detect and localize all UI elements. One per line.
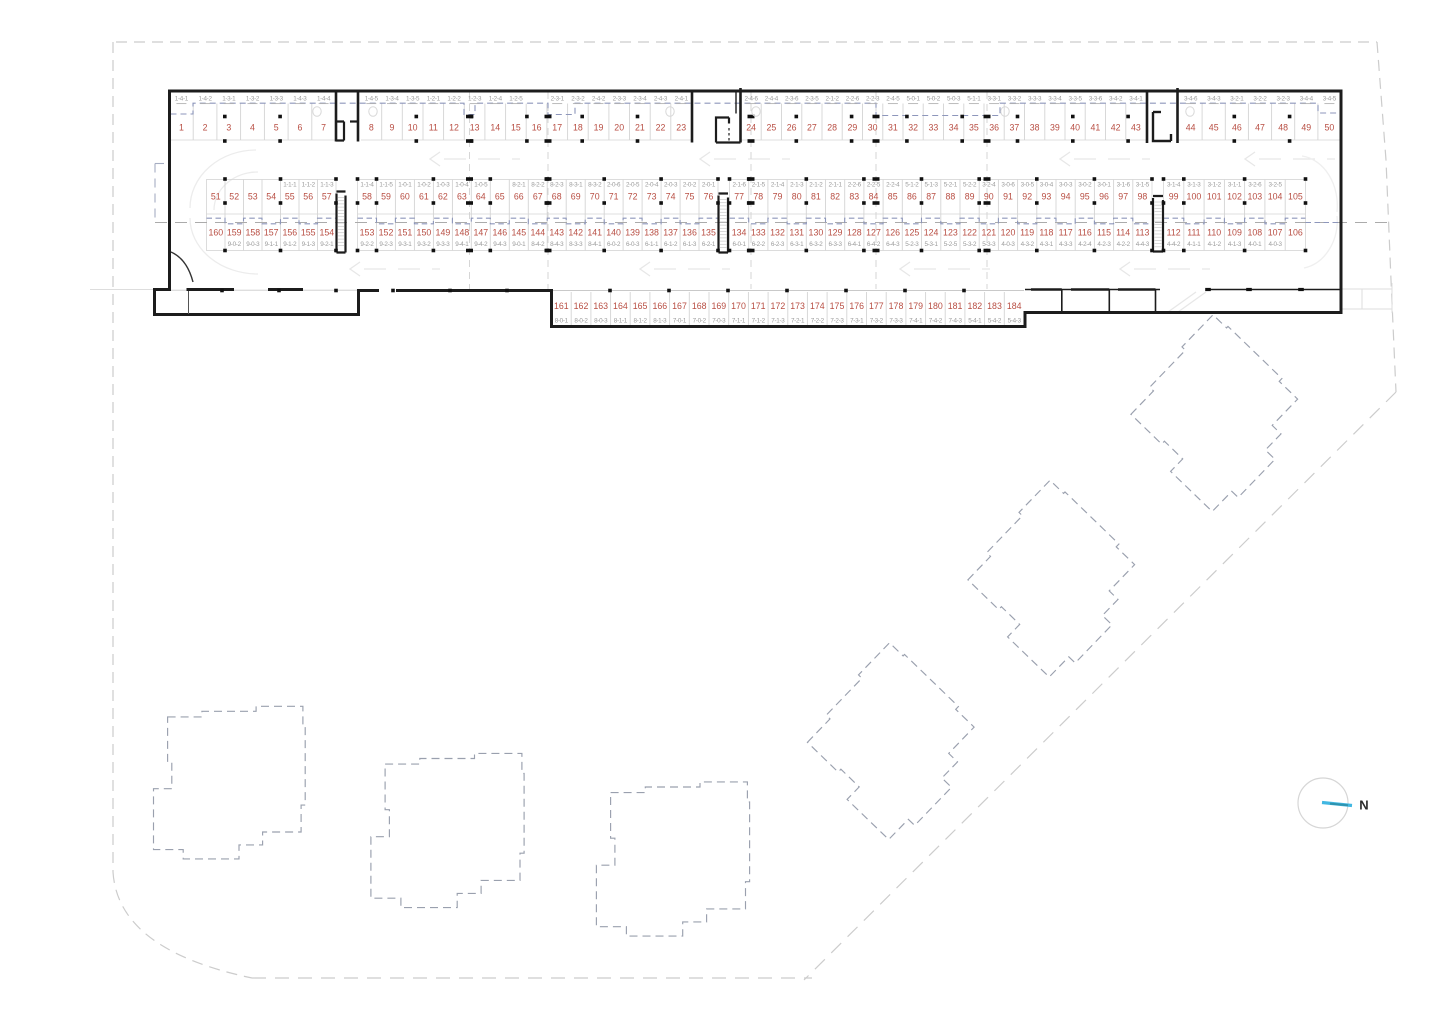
- svg-text:66: 66: [514, 192, 524, 202]
- svg-text:25: 25: [767, 122, 777, 132]
- svg-text:3-4-2: 3-4-2: [1109, 96, 1123, 103]
- svg-text:4-2-4: 4-2-4: [1078, 241, 1092, 248]
- svg-text:128: 128: [847, 227, 862, 237]
- svg-text:139: 139: [625, 227, 640, 237]
- svg-text:109: 109: [1227, 227, 1242, 237]
- svg-text:54: 54: [266, 192, 276, 202]
- svg-text:103: 103: [1247, 192, 1262, 202]
- svg-text:2-3-2: 2-3-2: [571, 96, 585, 103]
- svg-text:6-2-1: 6-2-1: [702, 241, 716, 248]
- svg-text:1-3-1: 1-3-1: [222, 96, 236, 103]
- svg-text:1-4-4: 1-4-4: [317, 96, 331, 103]
- svg-text:47: 47: [1255, 122, 1265, 132]
- svg-text:110: 110: [1207, 227, 1221, 237]
- svg-text:1-2-2: 1-2-2: [447, 96, 461, 103]
- svg-text:64: 64: [476, 192, 486, 202]
- svg-text:150: 150: [417, 227, 432, 237]
- svg-text:65: 65: [495, 192, 505, 202]
- svg-text:3-3-5: 3-3-5: [1068, 96, 1082, 103]
- svg-text:7-2-1: 7-2-1: [791, 318, 805, 325]
- svg-text:8-1-2: 8-1-2: [633, 318, 647, 325]
- svg-text:43: 43: [1131, 122, 1141, 132]
- svg-text:130: 130: [809, 227, 824, 237]
- svg-text:166: 166: [652, 301, 667, 311]
- svg-text:149: 149: [436, 227, 451, 237]
- svg-text:153: 153: [360, 227, 375, 237]
- svg-text:38: 38: [1030, 122, 1040, 132]
- svg-text:2-2-4: 2-2-4: [886, 181, 900, 188]
- svg-text:3-3-3: 3-3-3: [1028, 96, 1042, 103]
- svg-text:5-0-1: 5-0-1: [906, 96, 920, 103]
- svg-text:3-2-1: 3-2-1: [1230, 96, 1244, 103]
- svg-text:7-2-2: 7-2-2: [811, 318, 825, 325]
- svg-text:6-0-1: 6-0-1: [732, 241, 746, 248]
- svg-text:3-0-1: 3-0-1: [1097, 181, 1111, 188]
- svg-text:137: 137: [663, 227, 678, 237]
- svg-text:138: 138: [644, 227, 659, 237]
- svg-text:118: 118: [1039, 227, 1053, 237]
- svg-text:3-1-1: 3-1-1: [1228, 181, 1242, 188]
- svg-text:115: 115: [1097, 227, 1111, 237]
- svg-text:1-2-4: 1-2-4: [489, 96, 503, 103]
- svg-text:142: 142: [568, 227, 583, 237]
- svg-text:49: 49: [1301, 122, 1311, 132]
- svg-text:124: 124: [924, 227, 939, 237]
- svg-text:12: 12: [449, 122, 459, 132]
- svg-text:78: 78: [753, 192, 763, 202]
- svg-text:132: 132: [770, 227, 785, 237]
- svg-text:181: 181: [948, 301, 963, 311]
- svg-text:151: 151: [398, 227, 413, 237]
- svg-text:160: 160: [208, 227, 223, 237]
- svg-text:1-1-3: 1-1-3: [320, 181, 334, 188]
- svg-text:4-3-1: 4-3-1: [1040, 241, 1054, 248]
- svg-text:157: 157: [264, 227, 279, 237]
- svg-text:154: 154: [319, 227, 334, 237]
- svg-text:9-1-2: 9-1-2: [283, 241, 297, 248]
- svg-text:6-4-2: 6-4-2: [867, 241, 881, 248]
- svg-text:180: 180: [928, 301, 943, 311]
- svg-text:76: 76: [704, 192, 714, 202]
- svg-text:15: 15: [511, 122, 521, 132]
- svg-text:7-0-2: 7-0-2: [693, 318, 707, 325]
- svg-text:34: 34: [949, 122, 959, 132]
- svg-text:102: 102: [1227, 192, 1242, 202]
- svg-text:169: 169: [711, 301, 726, 311]
- svg-text:2-1-2: 2-1-2: [809, 181, 823, 188]
- svg-text:77: 77: [734, 192, 744, 202]
- svg-text:1-1-5: 1-1-5: [379, 181, 393, 188]
- svg-text:9: 9: [390, 122, 395, 132]
- svg-text:152: 152: [379, 227, 394, 237]
- svg-text:3-2-2: 3-2-2: [1253, 96, 1267, 103]
- svg-text:98: 98: [1138, 192, 1148, 202]
- svg-text:3-1-4: 3-1-4: [1167, 181, 1181, 188]
- svg-text:20: 20: [614, 122, 624, 132]
- svg-text:3-1-6: 3-1-6: [1117, 181, 1131, 188]
- svg-text:81: 81: [811, 192, 821, 202]
- svg-text:147: 147: [473, 227, 488, 237]
- svg-text:168: 168: [692, 301, 707, 311]
- svg-text:68: 68: [552, 192, 562, 202]
- svg-text:4-0-1: 4-0-1: [1248, 241, 1262, 248]
- svg-text:129: 129: [828, 227, 843, 237]
- svg-text:3-0-2: 3-0-2: [1078, 181, 1092, 188]
- svg-text:179: 179: [908, 301, 923, 311]
- svg-text:9-4-2: 9-4-2: [474, 241, 488, 248]
- svg-text:8-4-3: 8-4-3: [550, 241, 564, 248]
- svg-text:39: 39: [1050, 122, 1060, 132]
- svg-text:3-4-3: 3-4-3: [1207, 96, 1221, 103]
- svg-text:165: 165: [633, 301, 648, 311]
- svg-text:2-4-4: 2-4-4: [765, 96, 779, 103]
- svg-text:2-1-3: 2-1-3: [790, 181, 804, 188]
- svg-text:23: 23: [676, 122, 686, 132]
- svg-text:3-3-2: 3-3-2: [1008, 96, 1022, 103]
- svg-text:5-3-1: 5-3-1: [924, 241, 938, 248]
- svg-text:6: 6: [297, 122, 302, 132]
- svg-text:3-4-1: 3-4-1: [1129, 96, 1143, 103]
- svg-text:6-0-3: 6-0-3: [626, 241, 640, 248]
- svg-text:4-0-3: 4-0-3: [1001, 241, 1015, 248]
- svg-text:5-0-3: 5-0-3: [947, 96, 961, 103]
- svg-text:4-4-2: 4-4-2: [1167, 241, 1181, 248]
- svg-text:2-3-6: 2-3-6: [785, 96, 799, 103]
- svg-text:3-1-3: 3-1-3: [1187, 181, 1201, 188]
- svg-text:3-4-4: 3-4-4: [1300, 96, 1314, 103]
- svg-text:7-1-1: 7-1-1: [732, 318, 746, 325]
- svg-text:114: 114: [1116, 227, 1130, 237]
- svg-text:8-3-1: 8-3-1: [569, 181, 583, 188]
- svg-text:8-2-2: 8-2-2: [531, 181, 545, 188]
- svg-text:18: 18: [573, 122, 583, 132]
- svg-text:122: 122: [962, 227, 977, 237]
- svg-text:105: 105: [1288, 192, 1303, 202]
- svg-text:2-2-6: 2-2-6: [848, 181, 862, 188]
- svg-text:2-4-6: 2-4-6: [744, 96, 758, 103]
- svg-text:27: 27: [807, 122, 817, 132]
- svg-text:9-3-1: 9-3-1: [398, 241, 412, 248]
- svg-text:36: 36: [989, 122, 999, 132]
- svg-text:84: 84: [869, 192, 879, 202]
- svg-text:8-4-1: 8-4-1: [588, 241, 602, 248]
- svg-text:1-3-5: 1-3-5: [406, 96, 420, 103]
- svg-text:4-4-3: 4-4-3: [1136, 241, 1150, 248]
- svg-text:35: 35: [969, 122, 979, 132]
- svg-text:1-4-1: 1-4-1: [175, 96, 189, 103]
- svg-text:111: 111: [1187, 227, 1200, 237]
- svg-text:16: 16: [532, 122, 542, 132]
- svg-text:31: 31: [888, 122, 898, 132]
- svg-text:90: 90: [984, 192, 994, 202]
- svg-text:2-1-5: 2-1-5: [752, 181, 766, 188]
- svg-text:9-3-2: 9-3-2: [417, 241, 431, 248]
- svg-text:2-0-6: 2-0-6: [607, 181, 621, 188]
- svg-text:13: 13: [470, 122, 480, 132]
- svg-text:8: 8: [369, 122, 374, 132]
- svg-text:55: 55: [285, 192, 295, 202]
- svg-text:1-1-2: 1-1-2: [302, 181, 316, 188]
- svg-text:9-1-3: 9-1-3: [302, 241, 316, 248]
- svg-text:2-1-1: 2-1-1: [828, 181, 842, 188]
- svg-text:11: 11: [429, 122, 438, 132]
- svg-text:7-0-3: 7-0-3: [712, 318, 726, 325]
- svg-text:70: 70: [590, 192, 600, 202]
- svg-text:52: 52: [229, 192, 239, 202]
- svg-text:74: 74: [666, 192, 676, 202]
- svg-text:1-3-3: 1-3-3: [270, 96, 284, 103]
- svg-text:3-4-6: 3-4-6: [1184, 96, 1198, 103]
- svg-text:170: 170: [731, 301, 746, 311]
- svg-text:1-4-2: 1-4-2: [198, 96, 212, 103]
- svg-text:4-1-1: 4-1-1: [1187, 241, 1201, 248]
- svg-text:N: N: [1359, 798, 1368, 813]
- svg-text:2-1-2: 2-1-2: [825, 96, 839, 103]
- svg-text:123: 123: [943, 227, 958, 237]
- svg-text:1-3-2: 1-3-2: [246, 96, 260, 103]
- svg-text:5-1-1: 5-1-1: [967, 96, 981, 103]
- svg-text:3-3-1: 3-3-1: [987, 96, 1001, 103]
- svg-text:21: 21: [635, 122, 645, 132]
- svg-text:4-1-3: 4-1-3: [1228, 241, 1242, 248]
- svg-text:53: 53: [248, 192, 258, 202]
- svg-text:67: 67: [533, 192, 543, 202]
- svg-text:3-0-6: 3-0-6: [1001, 181, 1015, 188]
- svg-text:113: 113: [1135, 227, 1149, 237]
- svg-text:1-4-5: 1-4-5: [365, 96, 379, 103]
- svg-text:6-1-3: 6-1-3: [683, 241, 697, 248]
- svg-text:6-2-3: 6-2-3: [771, 241, 785, 248]
- svg-text:155: 155: [301, 227, 316, 237]
- svg-text:2-2-3: 2-2-3: [866, 96, 880, 103]
- svg-text:97: 97: [1118, 192, 1128, 202]
- svg-text:3-0-5: 3-0-5: [1021, 181, 1035, 188]
- svg-text:178: 178: [889, 301, 904, 311]
- svg-text:9-1-1: 9-1-1: [265, 241, 279, 248]
- svg-text:2-3-5: 2-3-5: [805, 96, 819, 103]
- svg-text:3-2-3: 3-2-3: [1276, 96, 1290, 103]
- svg-text:101: 101: [1207, 192, 1222, 202]
- svg-text:100: 100: [1187, 192, 1202, 202]
- svg-text:1-0-3: 1-0-3: [436, 181, 450, 188]
- svg-text:127: 127: [866, 227, 881, 237]
- svg-text:125: 125: [905, 227, 920, 237]
- svg-text:9-4-1: 9-4-1: [455, 241, 469, 248]
- svg-text:48: 48: [1278, 122, 1288, 132]
- svg-text:7-3-3: 7-3-3: [889, 318, 903, 325]
- svg-text:87: 87: [926, 192, 936, 202]
- svg-text:6-3-2: 6-3-2: [809, 241, 823, 248]
- svg-text:33: 33: [929, 122, 939, 132]
- svg-text:5-2-2: 5-2-2: [963, 181, 977, 188]
- svg-text:22: 22: [656, 122, 666, 132]
- svg-text:104: 104: [1268, 192, 1283, 202]
- svg-text:8-3-2: 8-3-2: [588, 181, 602, 188]
- svg-text:57: 57: [322, 192, 332, 202]
- svg-text:2-4-2: 2-4-2: [592, 96, 606, 103]
- svg-text:2-2-6: 2-2-6: [846, 96, 860, 103]
- svg-text:5: 5: [274, 122, 279, 132]
- svg-text:133: 133: [751, 227, 766, 237]
- svg-text:28: 28: [827, 122, 837, 132]
- svg-text:2-1-4: 2-1-4: [771, 181, 785, 188]
- svg-text:58: 58: [362, 192, 372, 202]
- svg-text:75: 75: [685, 192, 695, 202]
- svg-text:30: 30: [868, 122, 878, 132]
- svg-text:7: 7: [321, 122, 326, 132]
- svg-text:174: 174: [810, 301, 825, 311]
- svg-text:4-2-3: 4-2-3: [1097, 241, 1111, 248]
- svg-text:4-1-2: 4-1-2: [1208, 241, 1222, 248]
- svg-text:42: 42: [1111, 122, 1121, 132]
- svg-text:7-2-3: 7-2-3: [830, 318, 844, 325]
- svg-text:9-2-1: 9-2-1: [320, 241, 334, 248]
- svg-text:159: 159: [227, 227, 242, 237]
- svg-text:7-3-2: 7-3-2: [870, 318, 884, 325]
- svg-text:92: 92: [1022, 192, 1032, 202]
- svg-text:7-0-1: 7-0-1: [673, 318, 687, 325]
- svg-text:45: 45: [1209, 122, 1219, 132]
- svg-text:119: 119: [1020, 227, 1034, 237]
- svg-text:177: 177: [869, 301, 884, 311]
- svg-text:5-0-2: 5-0-2: [927, 96, 941, 103]
- svg-text:9-2-3: 9-2-3: [379, 241, 393, 248]
- svg-text:134: 134: [732, 227, 747, 237]
- svg-text:3-1-5: 3-1-5: [1136, 181, 1150, 188]
- svg-text:2-0-4: 2-0-4: [645, 181, 659, 188]
- svg-text:96: 96: [1099, 192, 1109, 202]
- svg-text:8-0-2: 8-0-2: [574, 318, 588, 325]
- svg-text:10: 10: [408, 122, 418, 132]
- svg-text:5-2-5: 5-2-5: [944, 241, 958, 248]
- svg-text:3-1-2: 3-1-2: [1208, 181, 1222, 188]
- svg-text:79: 79: [773, 192, 783, 202]
- svg-text:1: 1: [179, 122, 184, 132]
- svg-text:144: 144: [530, 227, 545, 237]
- svg-text:158: 158: [245, 227, 260, 237]
- svg-text:9-0-2: 9-0-2: [228, 241, 242, 248]
- svg-text:2-0-1: 2-0-1: [702, 181, 716, 188]
- svg-text:40: 40: [1070, 122, 1080, 132]
- svg-text:131: 131: [789, 227, 804, 237]
- svg-text:9-2-2: 9-2-2: [360, 241, 374, 248]
- svg-text:14: 14: [490, 122, 500, 132]
- svg-text:3-2-4: 3-2-4: [982, 181, 996, 188]
- svg-text:121: 121: [981, 227, 996, 237]
- svg-text:126: 126: [885, 227, 900, 237]
- svg-text:6-3-1: 6-3-1: [790, 241, 804, 248]
- svg-text:24: 24: [746, 122, 756, 132]
- svg-text:3-0-4: 3-0-4: [1040, 181, 1054, 188]
- svg-text:182: 182: [967, 301, 982, 311]
- svg-text:176: 176: [849, 301, 864, 311]
- svg-text:2-3-1: 2-3-1: [551, 96, 565, 103]
- svg-text:3-3-4: 3-3-4: [1048, 96, 1062, 103]
- svg-text:8-3-3: 8-3-3: [569, 241, 583, 248]
- svg-text:1-2-5: 1-2-5: [509, 96, 523, 103]
- svg-text:93: 93: [1042, 192, 1052, 202]
- svg-text:112: 112: [1167, 227, 1181, 237]
- svg-text:50: 50: [1325, 122, 1335, 132]
- svg-text:2-4-1: 2-4-1: [675, 96, 689, 103]
- svg-text:1-2-3: 1-2-3: [468, 96, 482, 103]
- svg-text:8-1-1: 8-1-1: [614, 318, 628, 325]
- svg-text:164: 164: [613, 301, 628, 311]
- svg-text:17: 17: [552, 122, 562, 132]
- svg-text:61: 61: [419, 192, 429, 202]
- svg-text:6-4-3: 6-4-3: [886, 241, 900, 248]
- svg-text:2-1-6: 2-1-6: [732, 181, 746, 188]
- svg-text:19: 19: [594, 122, 604, 132]
- svg-text:83: 83: [849, 192, 859, 202]
- svg-text:2-3-4: 2-3-4: [633, 96, 647, 103]
- svg-text:136: 136: [682, 227, 697, 237]
- svg-text:5-2-1: 5-2-1: [944, 181, 958, 188]
- svg-text:6-1-1: 6-1-1: [645, 241, 659, 248]
- svg-text:117: 117: [1059, 227, 1073, 237]
- svg-text:4-2-2: 4-2-2: [1117, 241, 1131, 248]
- svg-text:4-0-3: 4-0-3: [1268, 241, 1282, 248]
- svg-text:5-1-2: 5-1-2: [905, 181, 919, 188]
- svg-text:183: 183: [987, 301, 1002, 311]
- svg-text:5-3-3: 5-3-3: [982, 241, 996, 248]
- svg-text:5-1-3: 5-1-3: [924, 181, 938, 188]
- svg-text:91: 91: [1003, 192, 1013, 202]
- svg-text:1-4-3: 1-4-3: [293, 96, 307, 103]
- svg-text:140: 140: [606, 227, 621, 237]
- svg-text:161: 161: [554, 301, 569, 311]
- svg-text:8-0-3: 8-0-3: [594, 318, 608, 325]
- svg-text:172: 172: [771, 301, 786, 311]
- svg-text:3: 3: [226, 122, 231, 132]
- svg-text:6-3-3: 6-3-3: [828, 241, 842, 248]
- svg-text:175: 175: [830, 301, 845, 311]
- svg-text:8-4-2: 8-4-2: [531, 241, 545, 248]
- svg-text:37: 37: [1010, 122, 1020, 132]
- svg-text:1-1-4: 1-1-4: [360, 181, 374, 188]
- svg-text:9-4-3: 9-4-3: [493, 241, 507, 248]
- svg-text:44: 44: [1186, 122, 1196, 132]
- svg-text:162: 162: [574, 301, 589, 311]
- svg-text:9-0-1: 9-0-1: [512, 241, 526, 248]
- svg-text:6-0-2: 6-0-2: [607, 241, 621, 248]
- svg-text:8-2-3: 8-2-3: [550, 181, 564, 188]
- svg-text:5-3-2: 5-3-2: [963, 241, 977, 248]
- svg-text:1-1-1: 1-1-1: [283, 181, 297, 188]
- svg-text:2-0-5: 2-0-5: [626, 181, 640, 188]
- svg-text:116: 116: [1078, 227, 1092, 237]
- svg-text:73: 73: [647, 192, 657, 202]
- svg-text:9-3-3: 9-3-3: [436, 241, 450, 248]
- svg-text:141: 141: [587, 227, 602, 237]
- svg-text:5-2-3: 5-2-3: [905, 241, 919, 248]
- svg-text:1-2-1: 1-2-1: [427, 96, 441, 103]
- svg-text:3-0-3: 3-0-3: [1059, 181, 1073, 188]
- svg-text:4-3-2: 4-3-2: [1021, 241, 1035, 248]
- svg-text:143: 143: [549, 227, 564, 237]
- svg-text:145: 145: [511, 227, 526, 237]
- svg-text:1-0-4: 1-0-4: [455, 181, 469, 188]
- svg-text:89: 89: [965, 192, 975, 202]
- svg-text:5-4-1: 5-4-1: [968, 318, 982, 325]
- svg-text:69: 69: [571, 192, 581, 202]
- svg-text:26: 26: [787, 122, 797, 132]
- svg-text:46: 46: [1232, 122, 1242, 132]
- svg-text:7-1-2: 7-1-2: [752, 318, 766, 325]
- svg-text:163: 163: [593, 301, 608, 311]
- svg-text:184: 184: [1007, 301, 1022, 311]
- svg-text:8-2-1: 8-2-1: [512, 181, 526, 188]
